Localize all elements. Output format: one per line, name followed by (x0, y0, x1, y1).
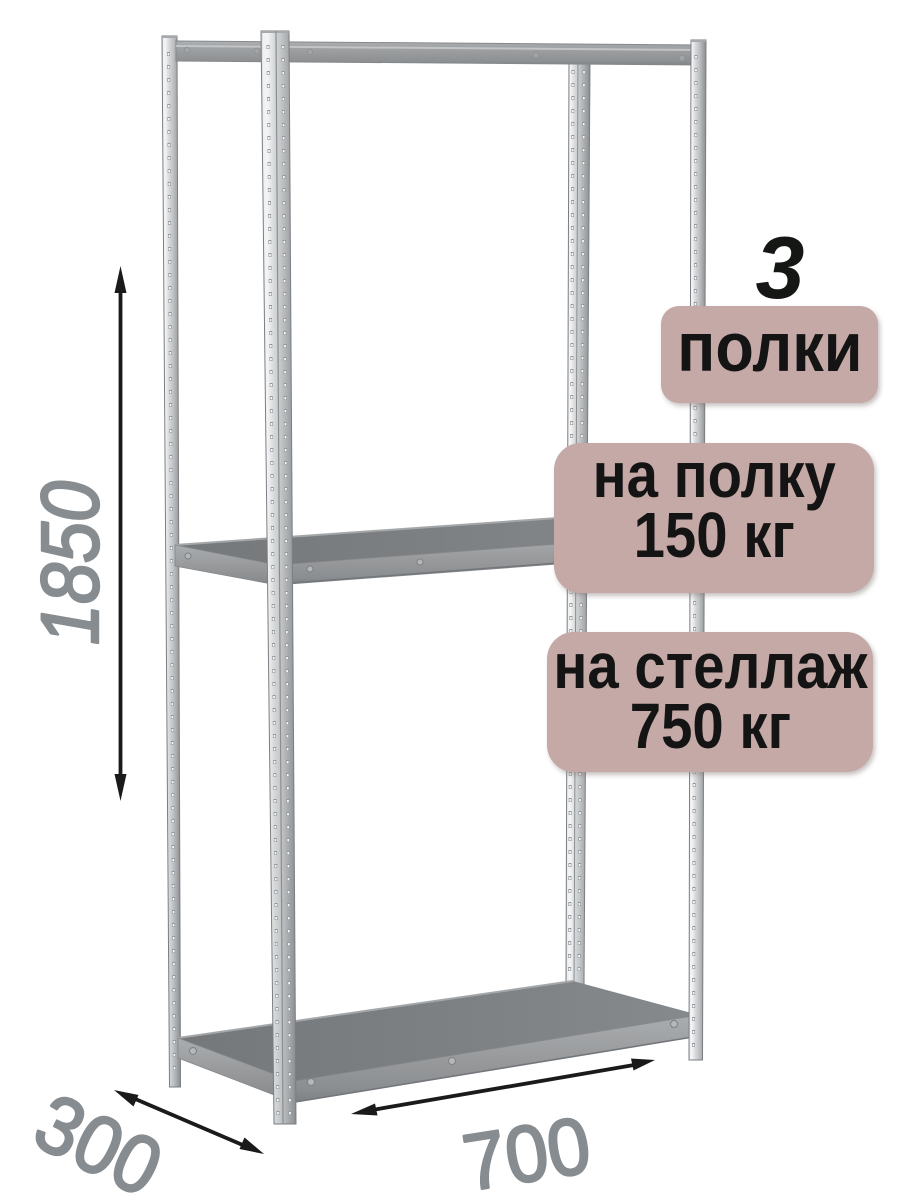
svg-text:1850: 1850 (25, 481, 116, 645)
svg-text:700: 700 (457, 1099, 596, 1200)
svg-text:300: 300 (21, 1075, 176, 1200)
